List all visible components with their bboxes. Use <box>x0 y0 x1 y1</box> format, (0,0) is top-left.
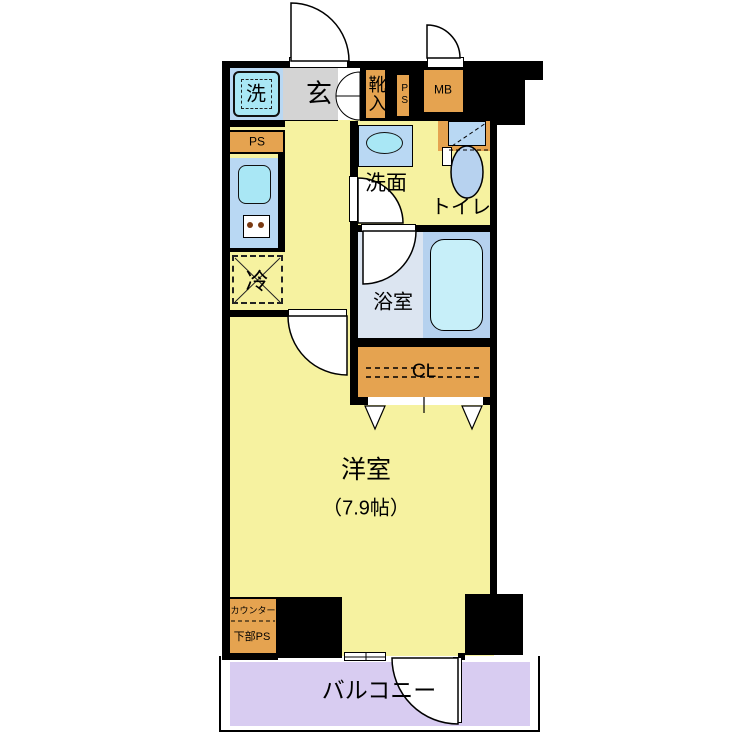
refrigerator-label: 冷 <box>246 269 269 293</box>
counter-ps-label: 下部PS <box>234 632 271 644</box>
washroom-label: 洗面 <box>365 173 407 195</box>
bathroom-door-swing <box>363 231 416 284</box>
toilet-label: トイレ <box>431 198 491 219</box>
western-room-label: 洋室 <box>341 457 391 483</box>
pipe-shaft-kitchen-label: PS <box>249 136 265 149</box>
closet-label: CL <box>412 362 436 382</box>
balcony-label: バルコニー <box>322 678 437 702</box>
bathroom-label: 浴室 <box>373 293 413 314</box>
shoe-cabinet-door-top <box>336 72 360 96</box>
western-room-size: （7.9帖） <box>322 499 410 520</box>
shoe-cabinet-door-bottom <box>336 96 360 120</box>
entrance-label: 玄 <box>306 80 332 107</box>
pipe-shaft-entrance-label: PS <box>399 83 410 107</box>
toilet-dash-diagonal <box>452 123 486 146</box>
toilet-bowl <box>451 146 483 198</box>
closet-folding-door-right <box>462 406 482 429</box>
room-door-swing <box>288 316 347 375</box>
entrance-door-arc <box>291 3 349 61</box>
meter-box-label: MB <box>434 84 452 97</box>
washing-machine-label: 洗 <box>246 85 266 106</box>
meter-box-door-arc <box>427 25 460 58</box>
counter-label: カウンター <box>230 606 275 615</box>
shoe-cabinet-label: 靴入 <box>367 75 386 113</box>
floorplan: 洗 玄 靴入 PS MB PS 洗面 トイレ 冷 浴室 CL 洋室 （7.9帖）… <box>0 0 740 740</box>
closet-folding-door-left <box>365 406 385 429</box>
